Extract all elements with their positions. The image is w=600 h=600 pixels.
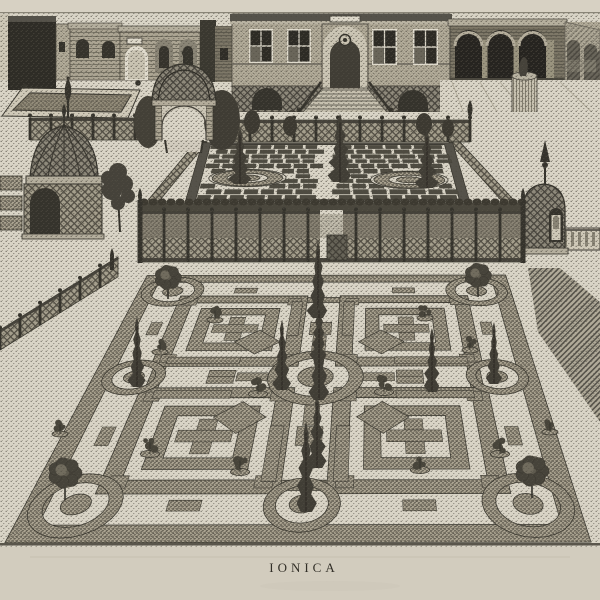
svg-text:IONICA: IONICA [269,560,339,575]
